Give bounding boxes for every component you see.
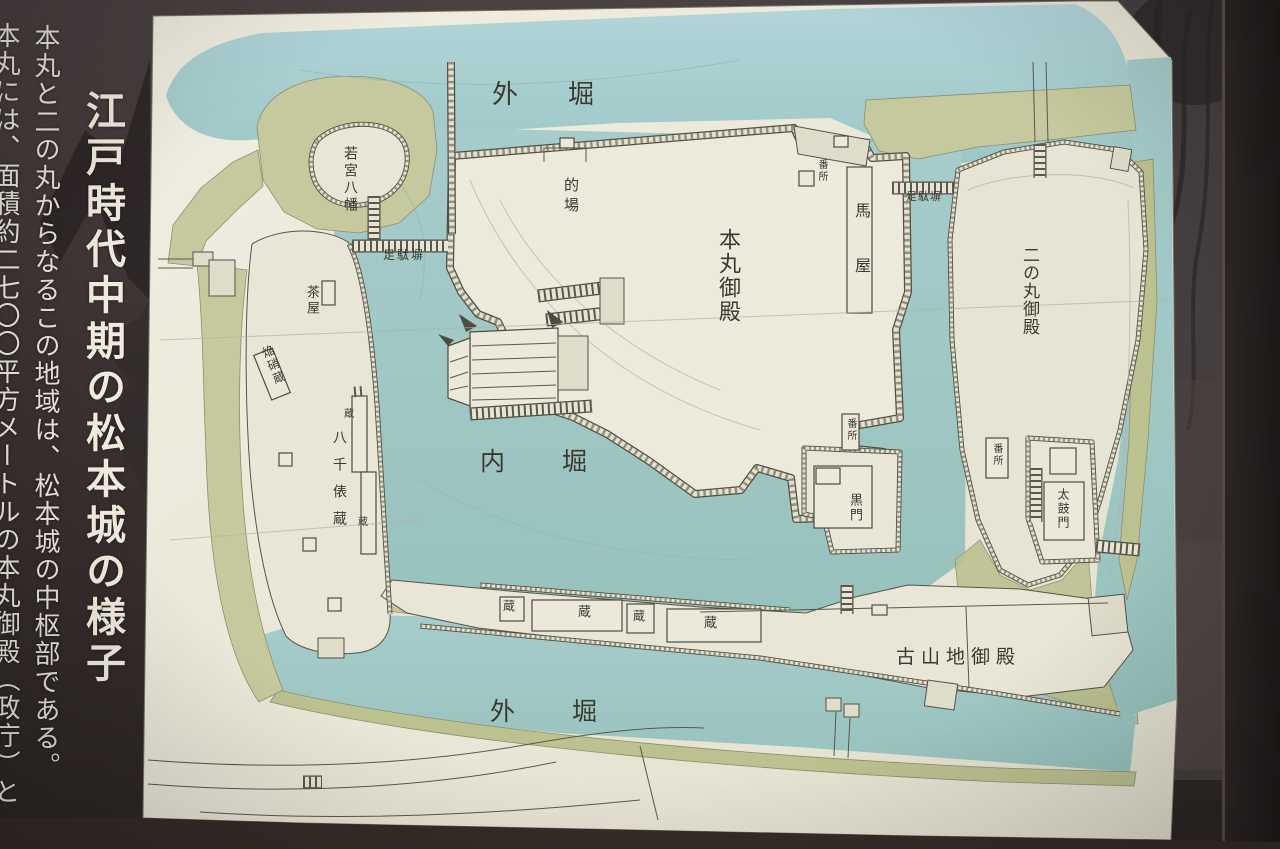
label-archery-range: 的場 [562, 177, 577, 217]
label-kura-small-2: 蔵 [358, 518, 368, 528]
label-wakamiya-hachiman: 若宮八幡 [342, 146, 356, 186]
label-guardhouse-top: 番所 [816, 159, 826, 183]
rice-store-building-2 [361, 472, 376, 554]
photographed-castle-map-sign: 江戸時代中期の松本城の様子 本丸と二の丸からなるこの地域は、松本城の中枢部である… [0, 0, 1280, 849]
storehouse-b [532, 600, 622, 631]
label-inner-moat: 内堀 [480, 450, 644, 475]
sign-body-column-1: 本丸と二の丸からなるこの地域は、松本城の中枢部である。 [32, 24, 58, 780]
sign-title: 江戸時代中期の松本城の様子 [82, 90, 122, 688]
label-rice-store: 八千俵蔵 [331, 430, 345, 538]
teahouse-building [322, 281, 335, 305]
frame-post-right [1222, 0, 1280, 849]
label-storehouse-b: 蔵 [578, 605, 591, 618]
guardhouse-top [799, 171, 814, 186]
label-kuromon-gate: 黒門 [849, 493, 862, 523]
label-ashida-fence-west: 足駄塀 [383, 249, 425, 261]
label-outer-moat-north: 外堀 [492, 82, 644, 108]
label-stable: 馬屋 [852, 202, 868, 312]
label-ashida-fence-east: 足駄塀 [906, 192, 942, 203]
label-guardhouse-kuromon: 番所 [845, 418, 855, 442]
label-ninomaru-palace: 二の丸御殿 [1021, 246, 1038, 336]
label-kura-small-1: 蔵 [344, 410, 354, 420]
rice-store-building-1 [352, 396, 367, 472]
label-honmaru-palace: 本丸御殿 [717, 228, 739, 324]
label-teahouse: 茶屋 [306, 285, 319, 317]
label-storehouse-c: 蔵 [633, 610, 645, 622]
label-outer-moat-south: 外堀 [490, 700, 654, 725]
sign-body-column-2: 本丸には、面積約二七〇〇平方メートルの本丸御殿（政庁）と [0, 22, 18, 806]
label-taikomon-gate: 太鼓門 [1057, 488, 1069, 530]
label-storehouse-d: 蔵 [704, 616, 717, 629]
label-guardhouse-east: 番所 [991, 443, 1001, 467]
label-storehouse-a: 蔵 [503, 600, 515, 612]
label-koyamaji-palace: 古山地御殿 [896, 648, 1021, 667]
